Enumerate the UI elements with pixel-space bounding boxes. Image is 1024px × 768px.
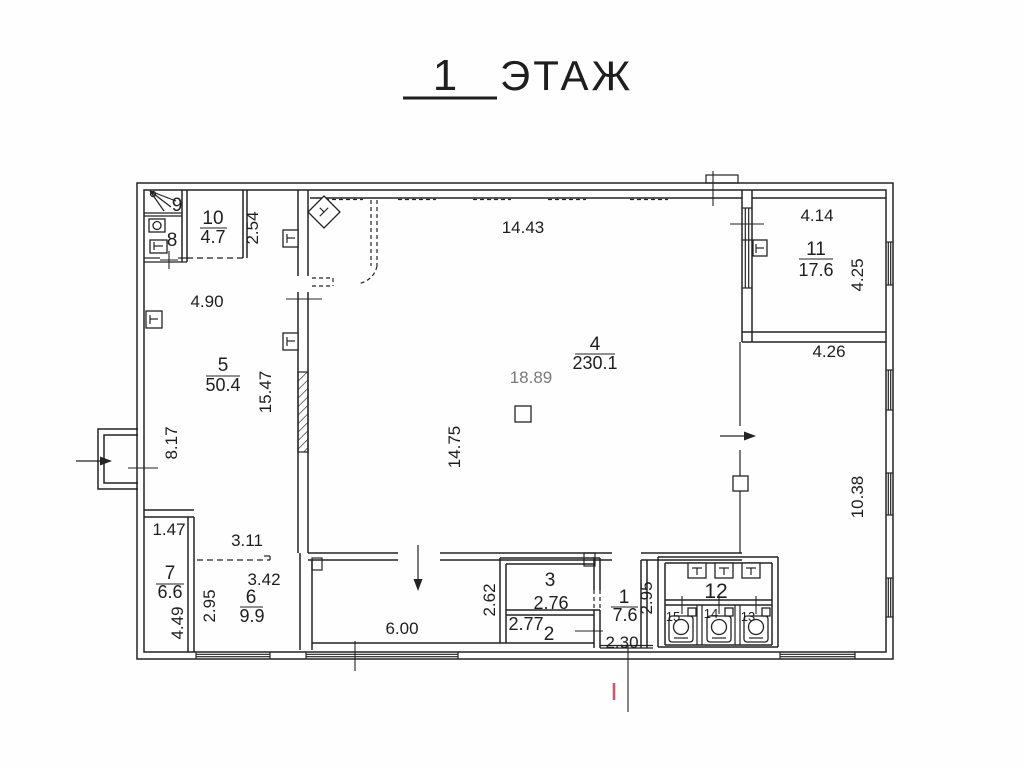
room-15-label: 15 [666,609,680,624]
dim-2-54: 2.54 [243,211,262,244]
room-9-label: 9 [172,195,183,216]
svg-text:2: 2 [544,624,555,645]
radiator-icon [283,333,298,350]
sink-icon [688,563,706,578]
paper-holder-icon [762,608,770,616]
dimension-labels: 2.54 4.90 15.47 8.17 14.43 18.89 14.75 4… [152,206,867,652]
sink-icon [742,563,760,578]
room-14-label: 14 [704,606,718,621]
svg-text:6.6: 6.6 [157,582,182,602]
floor-plan-page: 1 ЭТАЖ [0,0,1024,768]
dim-2-62: 2.62 [480,583,499,616]
dim-4-25: 4.25 [848,258,867,291]
svg-text:7.6: 7.6 [612,605,637,625]
dim-8-17: 8.17 [162,426,181,459]
dim-2-95-room6: 2.95 [200,589,219,622]
dim-14-75: 14.75 [445,426,464,469]
svg-text:2.77: 2.77 [508,614,543,634]
roof-shaft [706,175,738,183]
svg-text:50.4: 50.4 [205,375,240,395]
room-4-label: 4 230.1 [572,334,617,373]
column-icon [733,476,748,491]
dim-4-14: 4.14 [800,206,833,225]
svg-text:7: 7 [165,563,176,584]
dim-2-30: 2.30 [605,633,638,652]
dim-4-49: 4.49 [168,606,187,639]
svg-text:17.6: 17.6 [798,260,833,280]
dim-6-00: 6.00 [385,619,418,638]
room-8-label: 8 [167,230,178,251]
dim-10-38: 10.38 [848,476,867,519]
room-3-label: 3 2.76 [533,570,568,613]
room-10-label: 10 4.7 [200,208,227,247]
hatched-wall-section [298,372,308,452]
room-13-label: 13 [741,609,755,624]
room-6-label: 6 9.9 [239,587,264,626]
dim-3-11: 3.11 [231,531,263,550]
svg-text:10: 10 [202,208,223,229]
dim-15-47: 15.47 [256,371,275,414]
sink-icon [150,240,167,253]
radiator-icon [753,240,767,256]
page-title: 1 ЭТАЖ [403,51,633,100]
door-cross-mark [160,251,178,269]
radiator-icon [283,230,298,247]
paper-holder-icon [725,608,733,616]
entrance-arrow-left [76,457,112,466]
room-number: 4 [590,334,601,355]
room-12-label: 12 [704,580,727,603]
svg-text:5: 5 [218,355,229,376]
toilet-icon [149,219,165,232]
svg-text:6: 6 [246,587,257,608]
dim-4-90: 4.90 [190,292,223,311]
column-icon [515,406,531,422]
dim-2-95-room12: 2.95 [637,581,656,614]
dim-3-42: 3.42 [247,570,280,589]
floor-word: ЭТАЖ [500,52,633,99]
entrance-arrow-right [720,432,756,441]
floor-number: 1 [433,51,457,100]
room-5-label: 5 50.4 [205,355,240,395]
dim-18-89: 18.89 [510,368,553,387]
paper-holder-icon [688,608,696,616]
entrance-arrow-corridor [414,545,423,591]
dim-14-43: 14.43 [502,218,545,237]
room-1-label: 1 7.6 [611,587,638,625]
radiator-icon [146,311,162,328]
floor-plan-drawing: 1 ЭТАЖ [0,0,1024,768]
room-7-label: 7 6.6 [156,563,184,602]
svg-text:9.9: 9.9 [239,606,264,626]
dim-1-47: 1.47 [152,520,185,539]
room-2-label: 2.77 2 [508,614,554,645]
svg-text:11: 11 [806,239,826,260]
windows-right-wall [886,242,893,617]
room-area: 230.1 [572,353,617,373]
dim-4-26: 4.26 [812,342,845,361]
svg-text:3: 3 [545,570,556,591]
shaft-symbol [308,196,340,228]
svg-text:2.76: 2.76 [533,593,568,613]
room-11-label: 11 17.6 [798,239,833,280]
svg-text:4.7: 4.7 [200,227,225,247]
sink-icon [715,563,733,578]
